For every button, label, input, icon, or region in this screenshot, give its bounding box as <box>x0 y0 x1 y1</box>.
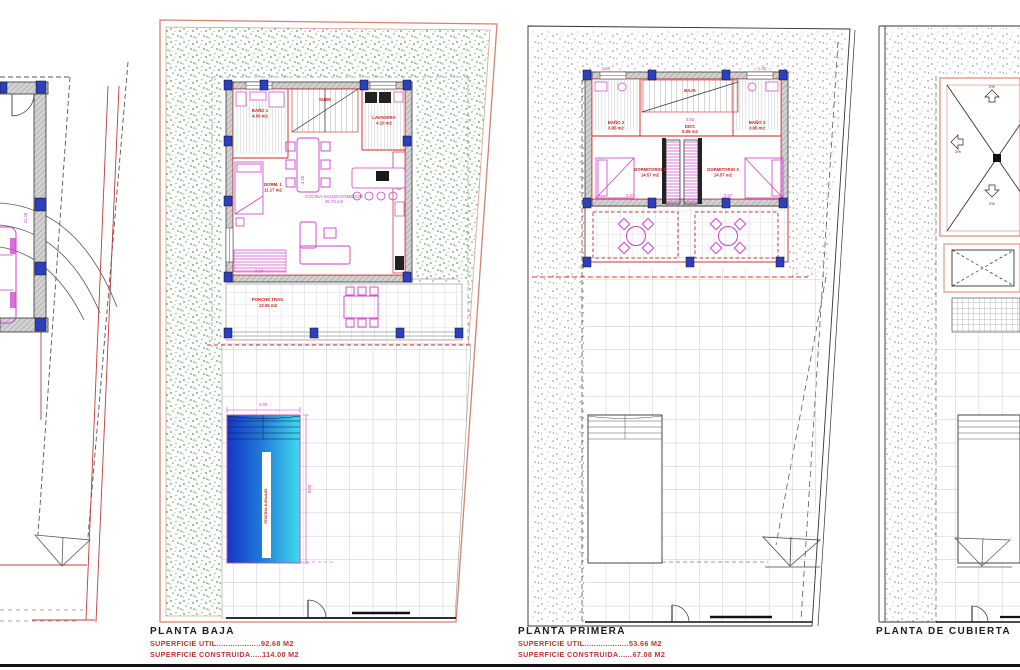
plot-dashed-boundary <box>0 62 128 537</box>
red-boundary-lines <box>0 86 119 622</box>
svg-text:DORM. 1: DORM. 1 <box>264 182 283 187</box>
svg-text:3.50: 3.50 <box>686 117 695 122</box>
svg-text:4.10 m2: 4.10 m2 <box>376 121 392 126</box>
svg-text:SUBE: SUBE <box>319 97 331 102</box>
plan-title-cubierta: PLANTA DE CUBIERTA <box>876 626 1011 637</box>
pergola-grid <box>952 298 1020 332</box>
car <box>0 227 16 323</box>
bath2: BAÑO 2 3.95 m2 <box>593 80 640 131</box>
terrace <box>585 206 788 262</box>
svg-text:BAÑO 3: BAÑO 3 <box>749 120 766 125</box>
roof: 2% 2% 2% <box>940 78 1020 236</box>
svg-text:3.95 m2: 3.95 m2 <box>608 126 624 131</box>
plan-title-baja: PLANTA BAJA <box>150 626 235 637</box>
porch-label: PORCHE TRAS. <box>252 297 284 302</box>
svg-text:3.20: 3.20 <box>255 269 264 274</box>
svg-text:2%: 2% <box>989 201 995 206</box>
svg-text:DORMITORIO 3: DORMITORIO 3 <box>707 167 739 172</box>
dim-label: 11.45 <box>23 212 28 223</box>
svg-text:14.57 m2: 14.57 m2 <box>714 173 733 178</box>
pool-outline <box>958 415 1020 563</box>
svg-text:4.00 m2: 4.00 m2 <box>252 114 268 119</box>
svg-text:3.95 m2: 3.95 m2 <box>749 126 765 131</box>
house-ground-floor: SUBE BAÑO 1 4.00 m2 DORM. 1 11.17 m2 LAV… <box>226 82 412 282</box>
svg-text:13.05 m2: 13.05 m2 <box>259 303 278 308</box>
svg-text:2.87: 2.87 <box>626 193 635 198</box>
svg-text:2.87: 2.87 <box>724 193 733 198</box>
svg-text:LAVADERO: LAVADERO <box>372 115 396 120</box>
svg-text:1.60: 1.60 <box>758 66 767 71</box>
pool-label: PISCINA 8.00x4.00 <box>263 488 268 524</box>
svg-text:BAÑO 2: BAÑO 2 <box>608 120 625 125</box>
superficie-construida-baja: SUPERFICIE CONSTRUIDA.....114.00 M2 <box>150 650 299 659</box>
plan-title-primera: PLANTA PRIMERA <box>518 626 626 637</box>
superficie-util-baja: SUPERFICIE UTIL...................92.68 … <box>150 639 294 648</box>
plans-drawing: 11.45 PORCHE TRAS. 13.05 m2 10.74 <box>0 0 1020 670</box>
svg-text:11.17 m2: 11.17 m2 <box>264 188 283 193</box>
svg-text:2%: 2% <box>955 149 961 154</box>
svg-text:5.06 m2: 5.06 m2 <box>682 129 698 134</box>
svg-text:45.74 m2: 45.74 m2 <box>325 199 344 204</box>
svg-text:BAÑO 1: BAÑO 1 <box>252 108 269 113</box>
garden-texture <box>886 28 936 622</box>
svg-text:8.00: 8.00 <box>307 484 312 493</box>
stairs: BAJA <box>642 80 738 112</box>
garden-texture <box>532 30 585 622</box>
svg-text:1.40: 1.40 <box>602 66 611 71</box>
sheet-border <box>0 664 1020 667</box>
plan-planta-primera: BAJA 3.50 DIST. 5.06 m2 BAÑO 2 3.95 m2 B… <box>518 26 855 659</box>
superficie-construida-primera: SUPERFICIE CONSTRUIDA......67.08 M2 <box>518 650 665 659</box>
flat-roof <box>944 244 1020 292</box>
plan-left-partial: 11.45 <box>0 62 128 622</box>
stairs: SUBE <box>292 89 358 132</box>
bath3: BAÑO 3 3.95 m2 <box>733 80 780 131</box>
svg-text:2%: 2% <box>989 84 995 89</box>
house-first-floor: BAJA 3.50 DIST. 5.06 m2 BAÑO 2 3.95 m2 B… <box>585 66 788 206</box>
svg-text:DORMITORIO 2: DORMITORIO 2 <box>634 167 666 172</box>
plan-planta-baja: PORCHE TRAS. 13.05 m2 10.74 SUBE B <box>150 20 497 659</box>
plan-planta-cubierta: 2% 2% 2% PLANTA DE CUBIERTA <box>876 26 1020 637</box>
door-arc <box>12 94 34 116</box>
svg-text:14.57 m2: 14.57 m2 <box>641 173 660 178</box>
architectural-sheet: 11.45 PORCHE TRAS. 13.05 m2 10.74 <box>0 0 1020 670</box>
svg-text:4.20: 4.20 <box>300 175 305 184</box>
svg-text:4.00: 4.00 <box>259 402 268 407</box>
laundry: LAVADERO 4.10 m2 <box>363 90 405 149</box>
svg-text:BAJA: BAJA <box>684 88 696 93</box>
superficie-util-primera: SUPERFICIE UTIL...................53.66 … <box>518 639 662 648</box>
ramp-symbol <box>35 535 90 566</box>
